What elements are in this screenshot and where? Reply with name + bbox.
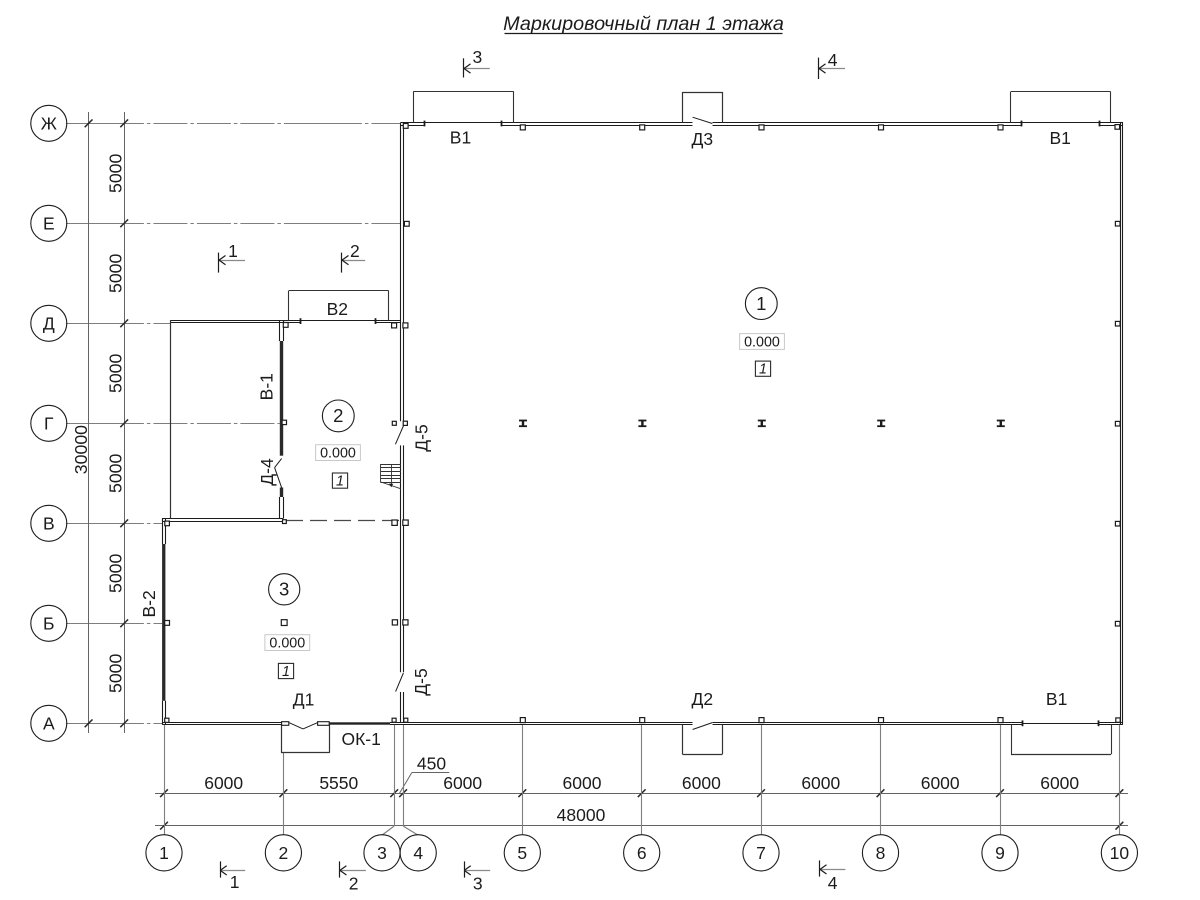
- svg-text:5000: 5000: [105, 253, 125, 293]
- svg-text:Д3: Д3: [692, 129, 714, 149]
- svg-text:6000: 6000: [921, 773, 960, 793]
- svg-text:ОК-1: ОК-1: [342, 729, 381, 749]
- svg-text:450: 450: [417, 754, 446, 774]
- svg-text:Д-4: Д-4: [257, 458, 277, 486]
- svg-text:0.000: 0.000: [320, 446, 356, 462]
- svg-text:0.000: 0.000: [744, 335, 780, 351]
- svg-text:5000: 5000: [105, 453, 125, 493]
- svg-text:Д: Д: [43, 314, 55, 334]
- svg-text:1: 1: [336, 474, 344, 490]
- svg-text:6000: 6000: [682, 773, 721, 793]
- svg-text:0.000: 0.000: [269, 636, 305, 652]
- svg-text:6: 6: [637, 843, 647, 863]
- svg-text:3: 3: [473, 873, 483, 893]
- svg-text:Маркировочный план 1 этажа: Маркировочный план 1 этажа: [503, 13, 784, 35]
- svg-text:1: 1: [759, 362, 767, 378]
- svg-text:В2: В2: [327, 299, 348, 319]
- svg-text:10: 10: [1110, 843, 1130, 863]
- svg-text:5: 5: [517, 843, 527, 863]
- svg-text:В1: В1: [1046, 689, 1067, 709]
- svg-text:1: 1: [282, 664, 290, 680]
- svg-text:Ж: Ж: [41, 114, 57, 134]
- svg-text:7: 7: [756, 843, 766, 863]
- svg-text:6000: 6000: [204, 773, 243, 793]
- svg-text:В: В: [43, 514, 55, 534]
- svg-text:В1: В1: [1049, 128, 1070, 148]
- svg-text:А: А: [43, 714, 55, 734]
- svg-text:4: 4: [413, 843, 423, 863]
- svg-text:Д2: Д2: [692, 689, 714, 709]
- svg-text:3: 3: [279, 579, 289, 600]
- svg-text:5000: 5000: [105, 353, 125, 393]
- svg-text:8: 8: [876, 843, 886, 863]
- svg-text:1: 1: [228, 241, 238, 261]
- svg-text:2: 2: [349, 873, 359, 893]
- svg-text:1: 1: [159, 843, 169, 863]
- svg-text:6000: 6000: [563, 773, 602, 793]
- svg-text:5000: 5000: [105, 653, 125, 693]
- svg-text:9: 9: [995, 843, 1005, 863]
- svg-text:3: 3: [377, 843, 387, 863]
- svg-text:4: 4: [828, 50, 838, 70]
- svg-text:3: 3: [473, 47, 483, 67]
- svg-text:Е: Е: [43, 214, 55, 234]
- svg-text:4: 4: [828, 873, 838, 893]
- svg-text:2: 2: [350, 241, 360, 261]
- svg-text:6000: 6000: [443, 773, 482, 793]
- svg-text:6000: 6000: [801, 773, 840, 793]
- svg-text:30000: 30000: [71, 425, 91, 474]
- svg-text:6000: 6000: [1040, 773, 1079, 793]
- svg-text:Д-5: Д-5: [411, 668, 431, 695]
- svg-text:5000: 5000: [105, 553, 125, 593]
- svg-text:Б: Б: [43, 614, 54, 634]
- svg-text:В1: В1: [450, 128, 471, 148]
- svg-text:В-1: В-1: [256, 373, 276, 400]
- svg-text:Д1: Д1: [293, 689, 315, 709]
- svg-text:2: 2: [333, 405, 343, 426]
- svg-text:1: 1: [756, 293, 766, 314]
- svg-text:Д-5: Д-5: [412, 424, 432, 451]
- svg-text:2: 2: [279, 843, 289, 863]
- svg-text:5000: 5000: [105, 153, 125, 193]
- svg-text:5550: 5550: [319, 773, 358, 793]
- svg-text:1: 1: [230, 872, 240, 892]
- svg-text:В-2: В-2: [139, 590, 159, 617]
- svg-text:Г: Г: [44, 414, 54, 434]
- svg-text:48000: 48000: [557, 805, 606, 825]
